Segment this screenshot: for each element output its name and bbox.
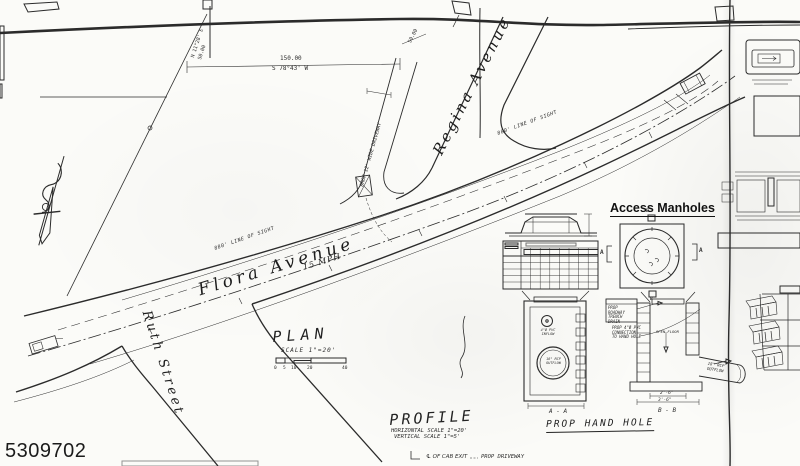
outflow-label-a: 18" RCP OUTFLOW	[541, 357, 566, 365]
right-margin-details	[714, 40, 800, 370]
drawing-sheet: Flora Avenue 15 MPH Regina Avenue Ruth S…	[0, 0, 800, 466]
callout-trench-drain: PROP ROADWAY TRENCH DRAIN	[608, 306, 636, 324]
hand-hole-title: PROP HAND HOLE	[546, 418, 654, 433]
manhole-dimension-table	[503, 241, 598, 289]
access-manhole-detail	[607, 215, 697, 297]
legend-cab-exit: ℄ OF CAB EXIT	[426, 454, 467, 460]
scale-tick-40: 40	[342, 366, 347, 371]
section-marker-b-bottom: B	[650, 297, 653, 302]
manhole-frame-section	[505, 214, 597, 236]
profile-vertical-scale: VERTICAL SCALE 1"=5'	[394, 434, 460, 440]
scale-tick-10: 10	[291, 366, 296, 371]
inflow-label: 4"Ø PVC INFLOW	[536, 328, 560, 336]
plan-linework	[0, 0, 800, 466]
callout-pvc-connection: PROP 4"Ø PVC CONNECTION TO HAND HOLE	[612, 326, 642, 340]
section-marker-a-left: A	[600, 250, 604, 257]
scale-tick-20: 20	[307, 366, 312, 371]
section-marker-a-right: A	[699, 248, 703, 255]
north-arrow	[29, 153, 69, 248]
dim-frontage-length: 150.00	[280, 56, 302, 63]
dim-inner-width: 2'-6"	[660, 391, 674, 396]
plan-scale-note: SCALE 1"=20'	[281, 348, 336, 355]
scale-tick-5: 5	[283, 366, 286, 371]
section-b-label: B - B	[658, 408, 676, 415]
dim-outer-width: 3'-6"	[658, 398, 672, 403]
sheet-id: 5309702	[5, 440, 86, 463]
open-floor-label: OPEN FLOOR	[656, 330, 679, 334]
section-marker-b-top: B	[646, 209, 649, 214]
access-manholes-title: Access Manholes	[610, 201, 715, 217]
dim-frontage-bearing: S 78°43' W	[272, 66, 308, 73]
section-a-label: A - A	[549, 409, 567, 416]
scale-tick-0: 0	[274, 366, 277, 371]
driveway	[340, 58, 417, 242]
hand-hole-section-a	[522, 291, 589, 409]
legend-prop-driveway: PROP DRIVEWAY	[481, 454, 524, 460]
scale-bar	[276, 358, 346, 363]
regina-avenue-road	[396, 17, 556, 199]
